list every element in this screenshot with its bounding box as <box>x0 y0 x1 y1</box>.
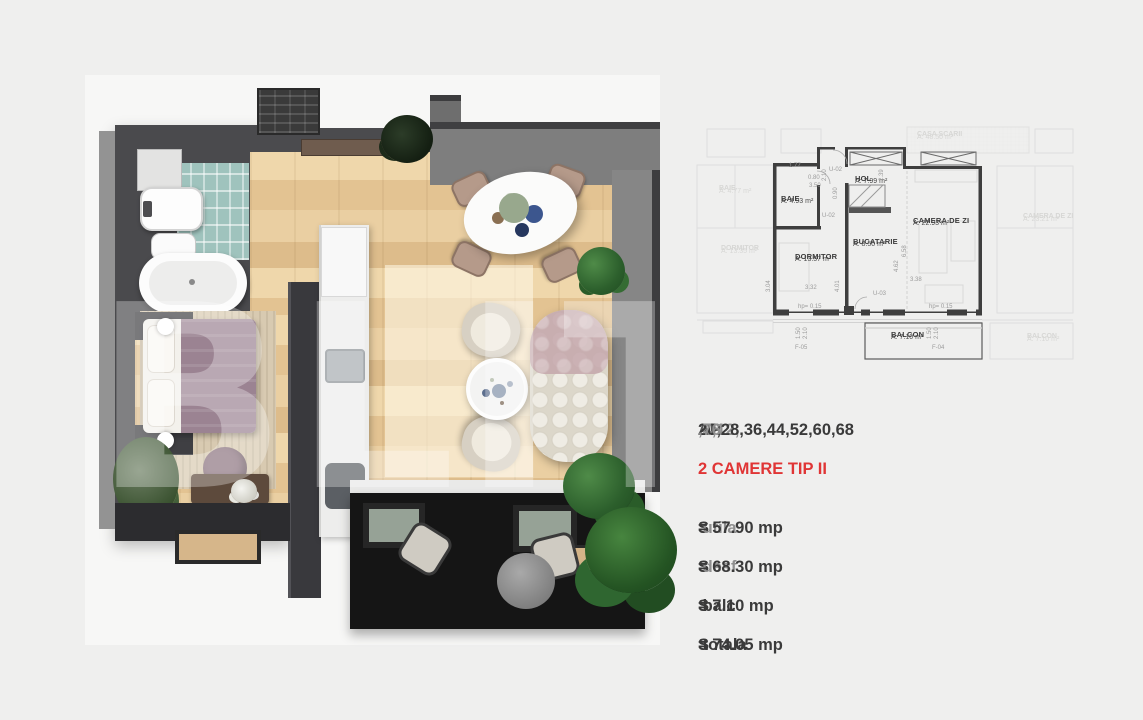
page-background: BLITZ <box>0 0 1143 720</box>
dimension: U-02 <box>829 167 842 173</box>
apartment-info: AP. 4,12,20,28,36,44,52,60,68,76 2 CAMER… <box>698 382 998 675</box>
balcony-outline <box>865 323 982 359</box>
dimension: U-03 <box>873 291 886 297</box>
dimension: 2.10 <box>934 327 940 339</box>
dimension: 3.38 <box>910 277 922 283</box>
dimension: hp= 0.15 <box>929 304 953 310</box>
dimension: 3.32 <box>805 285 817 291</box>
dimension: hp= 0.15 <box>798 304 822 310</box>
dimension: 2.10 <box>803 327 809 339</box>
dimension: 1.50 <box>796 327 802 339</box>
dimension: U-02 <box>822 213 835 219</box>
dimension: 1.77 <box>789 163 801 169</box>
sink-faucet <box>143 201 152 217</box>
dimension: 2.10 <box>822 169 828 181</box>
bathroom-cabinet <box>137 149 182 191</box>
entry-door-mat <box>257 88 320 135</box>
floorplan-technical-drawing: BAIEA: 4.93 m² HOLA: 7.99 m² DORMITORA: … <box>695 125 1075 375</box>
entry-plant <box>381 115 433 163</box>
dimension: 6.58 <box>902 245 908 257</box>
apartment-type-line: 2 CAMERE TIP II <box>698 460 998 480</box>
dimension: 1.50 <box>927 327 933 339</box>
dimension: 3.04 <box>766 280 772 292</box>
dimension: 0.90 <box>833 187 839 199</box>
window-sills <box>773 320 982 323</box>
dimension: 4.01 <box>835 280 841 292</box>
brand-watermark: BLITZ <box>93 235 655 575</box>
dimension: 3.50 <box>809 183 821 189</box>
floorplan-3d-render: BLITZ <box>85 75 660 645</box>
dimension: 2.39 <box>879 169 885 181</box>
dimension: 4.62 <box>894 260 900 272</box>
dimension: 0.80 <box>808 175 820 181</box>
dimension: F-05 <box>795 345 807 351</box>
table-centerpiece-flowers <box>499 193 529 223</box>
dimension: F-04 <box>932 345 944 351</box>
